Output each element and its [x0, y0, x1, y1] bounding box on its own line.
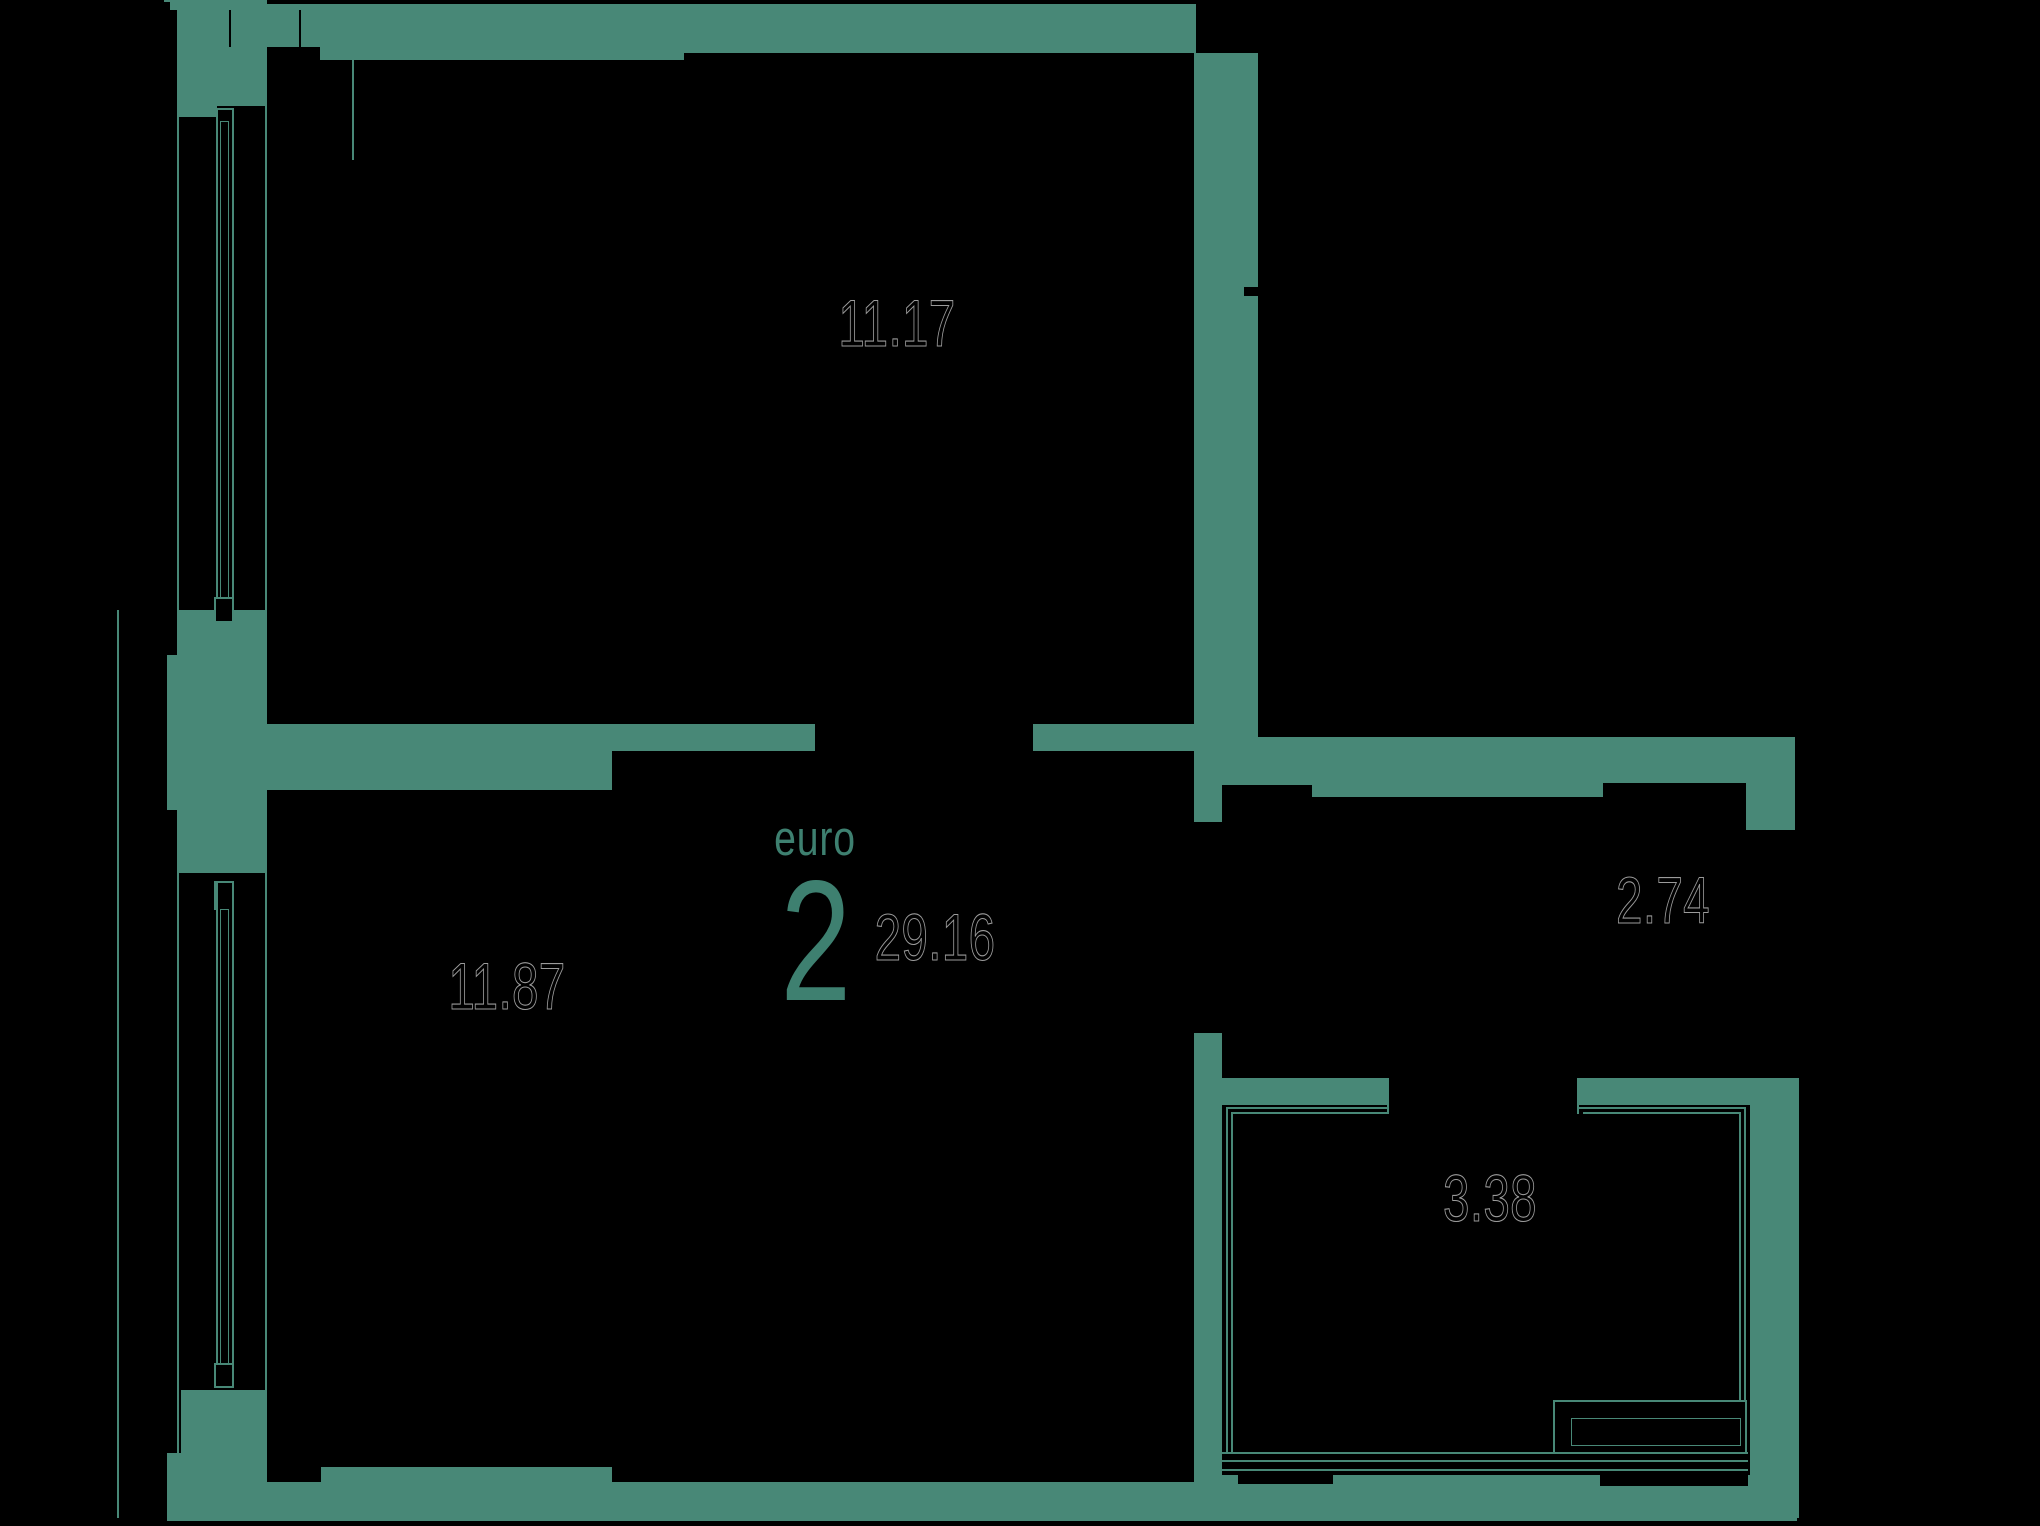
wall-left-mid-block	[179, 610, 267, 873]
window-bottom-sill-cap	[214, 1363, 234, 1388]
interior-face-line	[265, 47, 267, 1482]
notch-band-west	[1258, 785, 1312, 797]
wall-top-segment-3	[684, 4, 1196, 53]
hairline-top-wall-1	[229, 10, 231, 47]
notch-topleft-square	[158, 2, 170, 10]
inset-bottom-east	[1600, 1473, 1748, 1486]
right-wall-outer-line	[1797, 1078, 1799, 1518]
notch-band-east	[1603, 783, 1746, 797]
bath-outline-top-east	[1578, 1107, 1746, 1109]
window-top-glazing	[220, 121, 229, 598]
wall-middle-thin-west	[612, 724, 815, 751]
label-total-area: 29.16	[875, 899, 996, 975]
wall-left-bottom-block	[181, 1390, 266, 1521]
bathtub-inner	[1571, 1418, 1741, 1446]
window-top-sill-cap	[214, 597, 234, 623]
wall-middle-thick	[267, 724, 612, 790]
facade-line-outer	[117, 610, 119, 1518]
wall-right-upper	[1746, 738, 1795, 830]
wall-topleft-corner-step	[178, 106, 217, 117]
wall-bottom-main	[266, 1482, 1222, 1521]
label-area-bath-3-38: 3.38	[1443, 1160, 1537, 1236]
wall-middle-thin-east	[1033, 724, 1194, 751]
hairline-top-wall-2	[299, 10, 301, 47]
wall-top-segment-1	[267, 4, 320, 47]
label-area-hall-2-74: 2.74	[1616, 862, 1710, 938]
wall-bath-top-west	[1222, 1078, 1389, 1105]
wall-topleft-corner-block	[178, 0, 267, 106]
facade-line-short	[352, 57, 354, 160]
wall-top-segment-2	[320, 4, 684, 60]
notch-column-tick	[1244, 287, 1258, 296]
bath-outline-left	[1226, 1107, 1228, 1452]
inset-bottom-west	[1238, 1473, 1333, 1484]
label-euro-number: 2	[780, 842, 851, 1040]
label-area-room-11-87: 11.87	[448, 948, 565, 1024]
window-bottom-glazing	[220, 909, 229, 1364]
wall-east-column	[1194, 53, 1258, 785]
wall-right-lower	[1750, 1078, 1797, 1517]
bath-outline-top-west-inner	[1231, 1112, 1389, 1114]
facade-line-wall-face	[177, 0, 179, 1518]
wall-east-column-foot	[1194, 785, 1222, 822]
bath-outline-left-inner	[1231, 1112, 1233, 1452]
wall-bath-top-east	[1578, 1078, 1750, 1105]
wall-bottom-lip	[321, 1467, 612, 1482]
bath-threshold-line-2	[1222, 1460, 1748, 1462]
wall-bath-left-column	[1194, 1033, 1222, 1482]
floor-plan: 11.1711.872.743.3829.16euro2	[0, 0, 2040, 1526]
bath-threshold-line-3	[1222, 1469, 1748, 1471]
label-area-room-11-17: 11.17	[838, 285, 955, 361]
bath-outline-top-west	[1226, 1107, 1389, 1109]
bath-outline-top-east-inner	[1583, 1112, 1741, 1114]
